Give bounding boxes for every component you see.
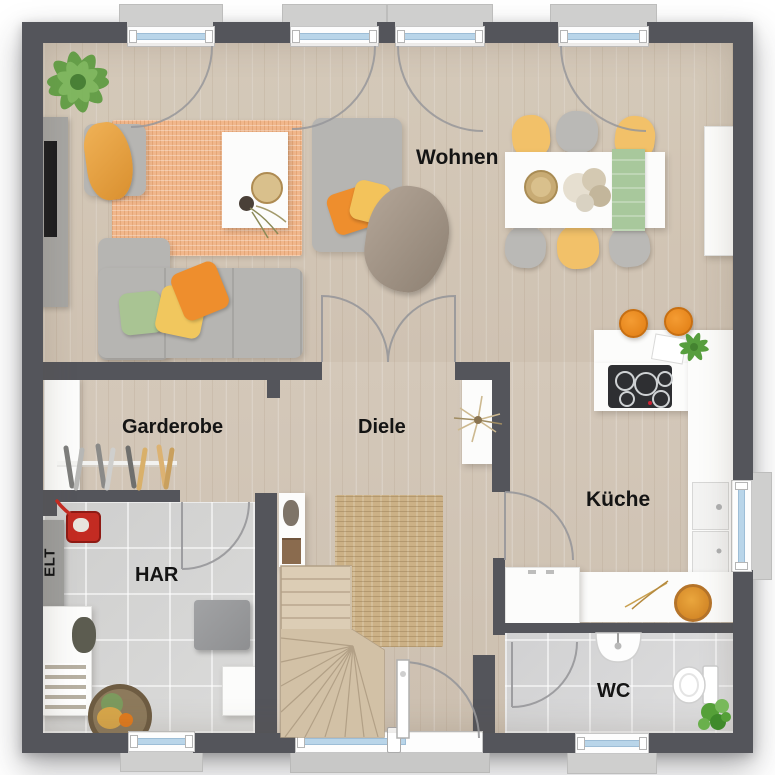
decor-tray <box>251 172 283 204</box>
outer-wall-top <box>377 22 395 43</box>
fridge-cabinet <box>505 567 580 624</box>
window-glass <box>297 33 372 40</box>
window <box>731 480 752 572</box>
kitchen-peninsula <box>594 363 691 411</box>
cabinet-handle <box>546 570 554 574</box>
cabinet-handle <box>528 570 536 574</box>
wall <box>492 380 510 492</box>
dining-table <box>505 152 665 228</box>
gray-box <box>194 600 250 650</box>
dining-chair-gray <box>504 225 548 270</box>
dining-chair-yellow <box>556 224 600 270</box>
towel-stack <box>45 663 86 709</box>
window-glass <box>565 33 642 40</box>
cooktop <box>608 365 672 408</box>
window-glass <box>134 33 208 40</box>
decor-vase <box>239 196 254 211</box>
fruit-bowl <box>674 584 712 622</box>
outer-wall-bottom <box>480 733 575 753</box>
table-runner <box>612 149 645 231</box>
window-glass <box>582 740 642 747</box>
hallway-rug <box>335 495 443 647</box>
window <box>395 26 485 47</box>
tv-screen <box>44 141 57 237</box>
tall-cabinet <box>704 126 736 256</box>
room-label-elt: ELT <box>42 541 59 585</box>
kitchen-counter-right <box>688 330 734 572</box>
orange-laundry <box>119 713 133 727</box>
outer-wall-right <box>733 22 753 480</box>
wall <box>455 362 510 380</box>
wall <box>493 558 505 635</box>
bar-stool <box>619 309 648 338</box>
room-label-har: HAR <box>135 564 178 587</box>
outer-wall-top <box>213 22 290 43</box>
window <box>558 26 649 47</box>
window <box>127 26 215 47</box>
cleaning-caddy <box>66 511 101 543</box>
niche-console <box>462 378 494 464</box>
kitchen-sink-2 <box>692 531 729 573</box>
dining-chair-gray <box>555 110 599 154</box>
wall <box>43 362 322 380</box>
outer-wall-top <box>483 22 558 43</box>
laundry-shelf-unit <box>40 606 92 716</box>
wall <box>43 490 180 502</box>
window-glass <box>135 738 188 745</box>
wall <box>505 623 733 633</box>
outer-wall-bottom <box>22 733 128 753</box>
outer-wall-bottom <box>647 733 753 753</box>
books <box>282 538 301 564</box>
outer-wall-top <box>22 22 127 43</box>
window-glass <box>738 487 745 565</box>
kitchen-sink <box>692 482 729 530</box>
room-label-wohnen: Wohnen <box>416 146 498 170</box>
wardrobe-cabinet <box>44 377 80 492</box>
clothes-pile <box>72 617 96 653</box>
window <box>575 733 649 754</box>
bar-stool-2 <box>664 307 693 336</box>
wall <box>255 493 277 733</box>
wall <box>267 380 280 398</box>
white-appliance <box>222 666 258 716</box>
cookbook <box>651 333 687 364</box>
room-label-wc: WC <box>597 680 630 703</box>
room-label-diele: Diele <box>358 416 406 439</box>
wall <box>473 655 495 733</box>
coffee-table <box>222 132 288 228</box>
outer-wall-bottom <box>193 733 297 753</box>
door-handle <box>387 727 401 753</box>
hall-shelf <box>279 493 305 567</box>
outer-wall-right <box>733 570 753 753</box>
window <box>128 731 195 752</box>
cleaning-cloth <box>73 518 89 532</box>
entrance-door-frame <box>295 731 483 753</box>
room-label-garderobe: Garderobe <box>122 416 223 439</box>
entrance-stoop <box>290 751 490 773</box>
wall-stub <box>43 502 57 516</box>
window-glass <box>402 33 478 40</box>
decor-flowers <box>283 500 299 526</box>
floor-plan: Wohnen Garderobe Diele Küche HAR ELT WC <box>0 0 775 775</box>
room-label-kueche: Küche <box>586 488 650 512</box>
window <box>290 26 379 47</box>
outer-wall-left <box>22 22 43 753</box>
